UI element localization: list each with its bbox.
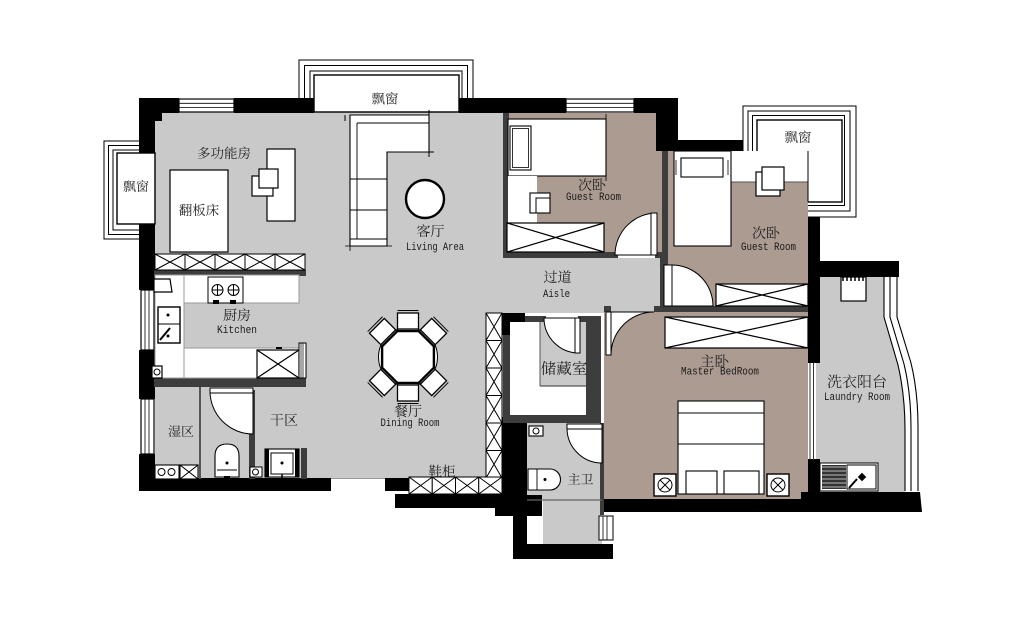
svg-text:Living Area: Living Area — [406, 242, 464, 254]
svg-text:Kitchen: Kitchen — [217, 325, 257, 337]
svg-text:Master BedRoom: Master BedRoom — [681, 367, 759, 379]
svg-text:Aisle: Aisle — [543, 289, 570, 301]
svg-text:Guest Room: Guest Room — [566, 192, 621, 204]
svg-text:Guest Room: Guest Room — [741, 242, 796, 254]
svg-text:Dining Room: Dining Room — [381, 418, 440, 430]
svg-text:Laundry Room: Laundry Room — [824, 392, 890, 404]
